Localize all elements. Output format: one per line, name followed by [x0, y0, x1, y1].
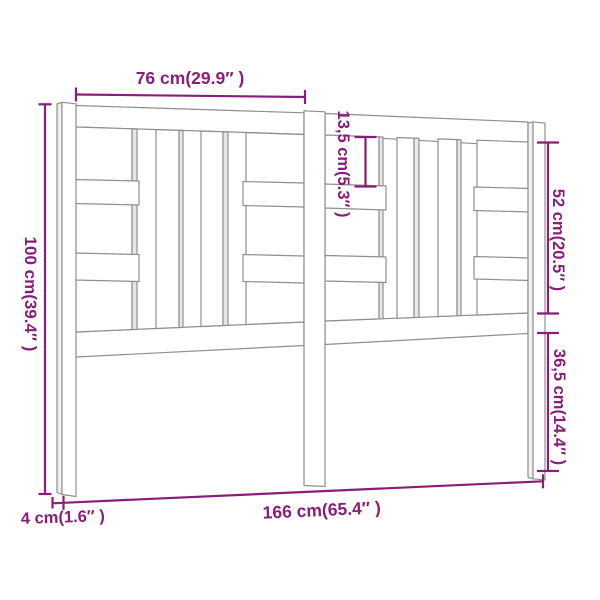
right-post-side-face [528, 122, 533, 479]
right-half-slat-2-edge [457, 140, 461, 316]
dim-label-inner-gap: 13,5 cm(5.3″ ) [334, 111, 352, 218]
panel-rail [74, 180, 139, 206]
left-half-slat-2-edge [223, 132, 228, 326]
headboard-dimension-diagram: 76 cm(29.9″ ) 100 cm(39.4″ ) 13,5 cm(5.3… [0, 0, 600, 600]
panel-rail [243, 255, 304, 284]
panel-rail [74, 253, 139, 282]
dim-label-post-thickness: 4 cm(1.6″ ) [21, 507, 106, 528]
dim-line-total-width [64, 481, 544, 503]
middle-post [304, 111, 325, 487]
dim-label-half-width: 76 cm(29.9″ ) [136, 68, 245, 88]
diagram-canvas: 76 cm(29.9″ ) 100 cm(39.4″ ) 13,5 cm(5.3… [0, 0, 600, 600]
panel-rail [243, 182, 304, 208]
left-half-slat-1-edge [179, 130, 183, 327]
left-post-side-face [57, 102, 62, 494]
panel-rail [474, 187, 530, 212]
left-half-panel-b [246, 133, 304, 325]
dim-label-upper-section: 52 cm(20.5″ ) [549, 189, 567, 291]
right-half-slat-1 [397, 138, 414, 319]
panel-rail [325, 256, 386, 283]
left-half-slat-2 [201, 131, 223, 326]
left-half-panel-a-edge [132, 129, 137, 330]
left-post [62, 102, 76, 496]
dim-line-post-thickness [53, 503, 64, 504]
left-half-slat-1 [156, 130, 179, 329]
right-half-panel-b [477, 140, 528, 315]
right-half-slat-1-edge [414, 138, 419, 317]
dim-label-height: 100 cm(39.4″ ) [21, 237, 40, 352]
right-post [533, 122, 545, 480]
dim-label-total-width: 166 cm(65.4″ ) [262, 497, 381, 522]
left-half-panel-a [76, 127, 132, 332]
right-half-slat-2 [438, 139, 457, 317]
right-half-panel-a-edge [379, 137, 383, 319]
dim-line-half-width [76, 95, 305, 98]
dim-label-lower-section: 36,5 cm(14.4″ ) [550, 349, 568, 465]
panel-rail [474, 257, 530, 281]
